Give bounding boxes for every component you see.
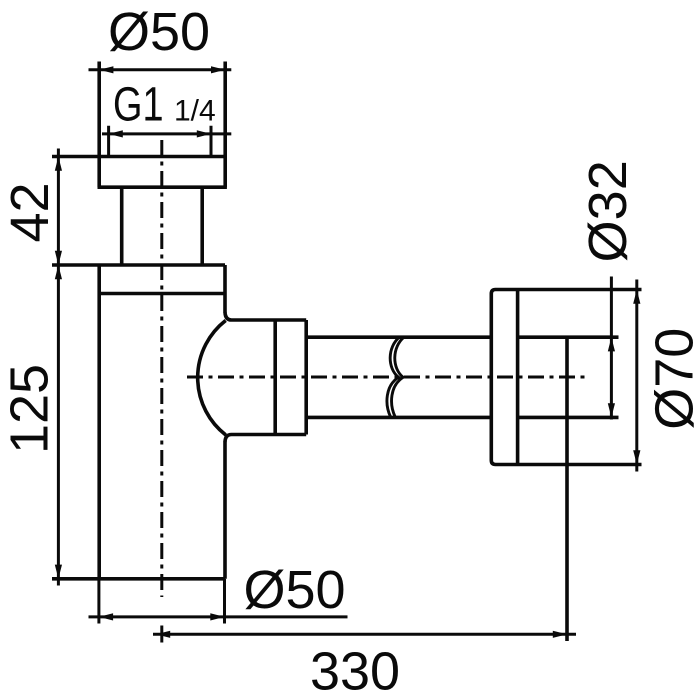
svg-text:125: 125 [0, 364, 60, 454]
svg-text:330: 330 [310, 642, 400, 700]
svg-text:42: 42 [0, 182, 60, 242]
svg-text:Ø50: Ø50 [108, 2, 210, 62]
svg-text:Ø50: Ø50 [243, 560, 345, 620]
svg-text:1/4: 1/4 [174, 95, 216, 128]
svg-text:Ø32: Ø32 [578, 160, 638, 262]
svg-text:Ø70: Ø70 [645, 328, 700, 430]
svg-text:G1: G1 [113, 79, 164, 132]
